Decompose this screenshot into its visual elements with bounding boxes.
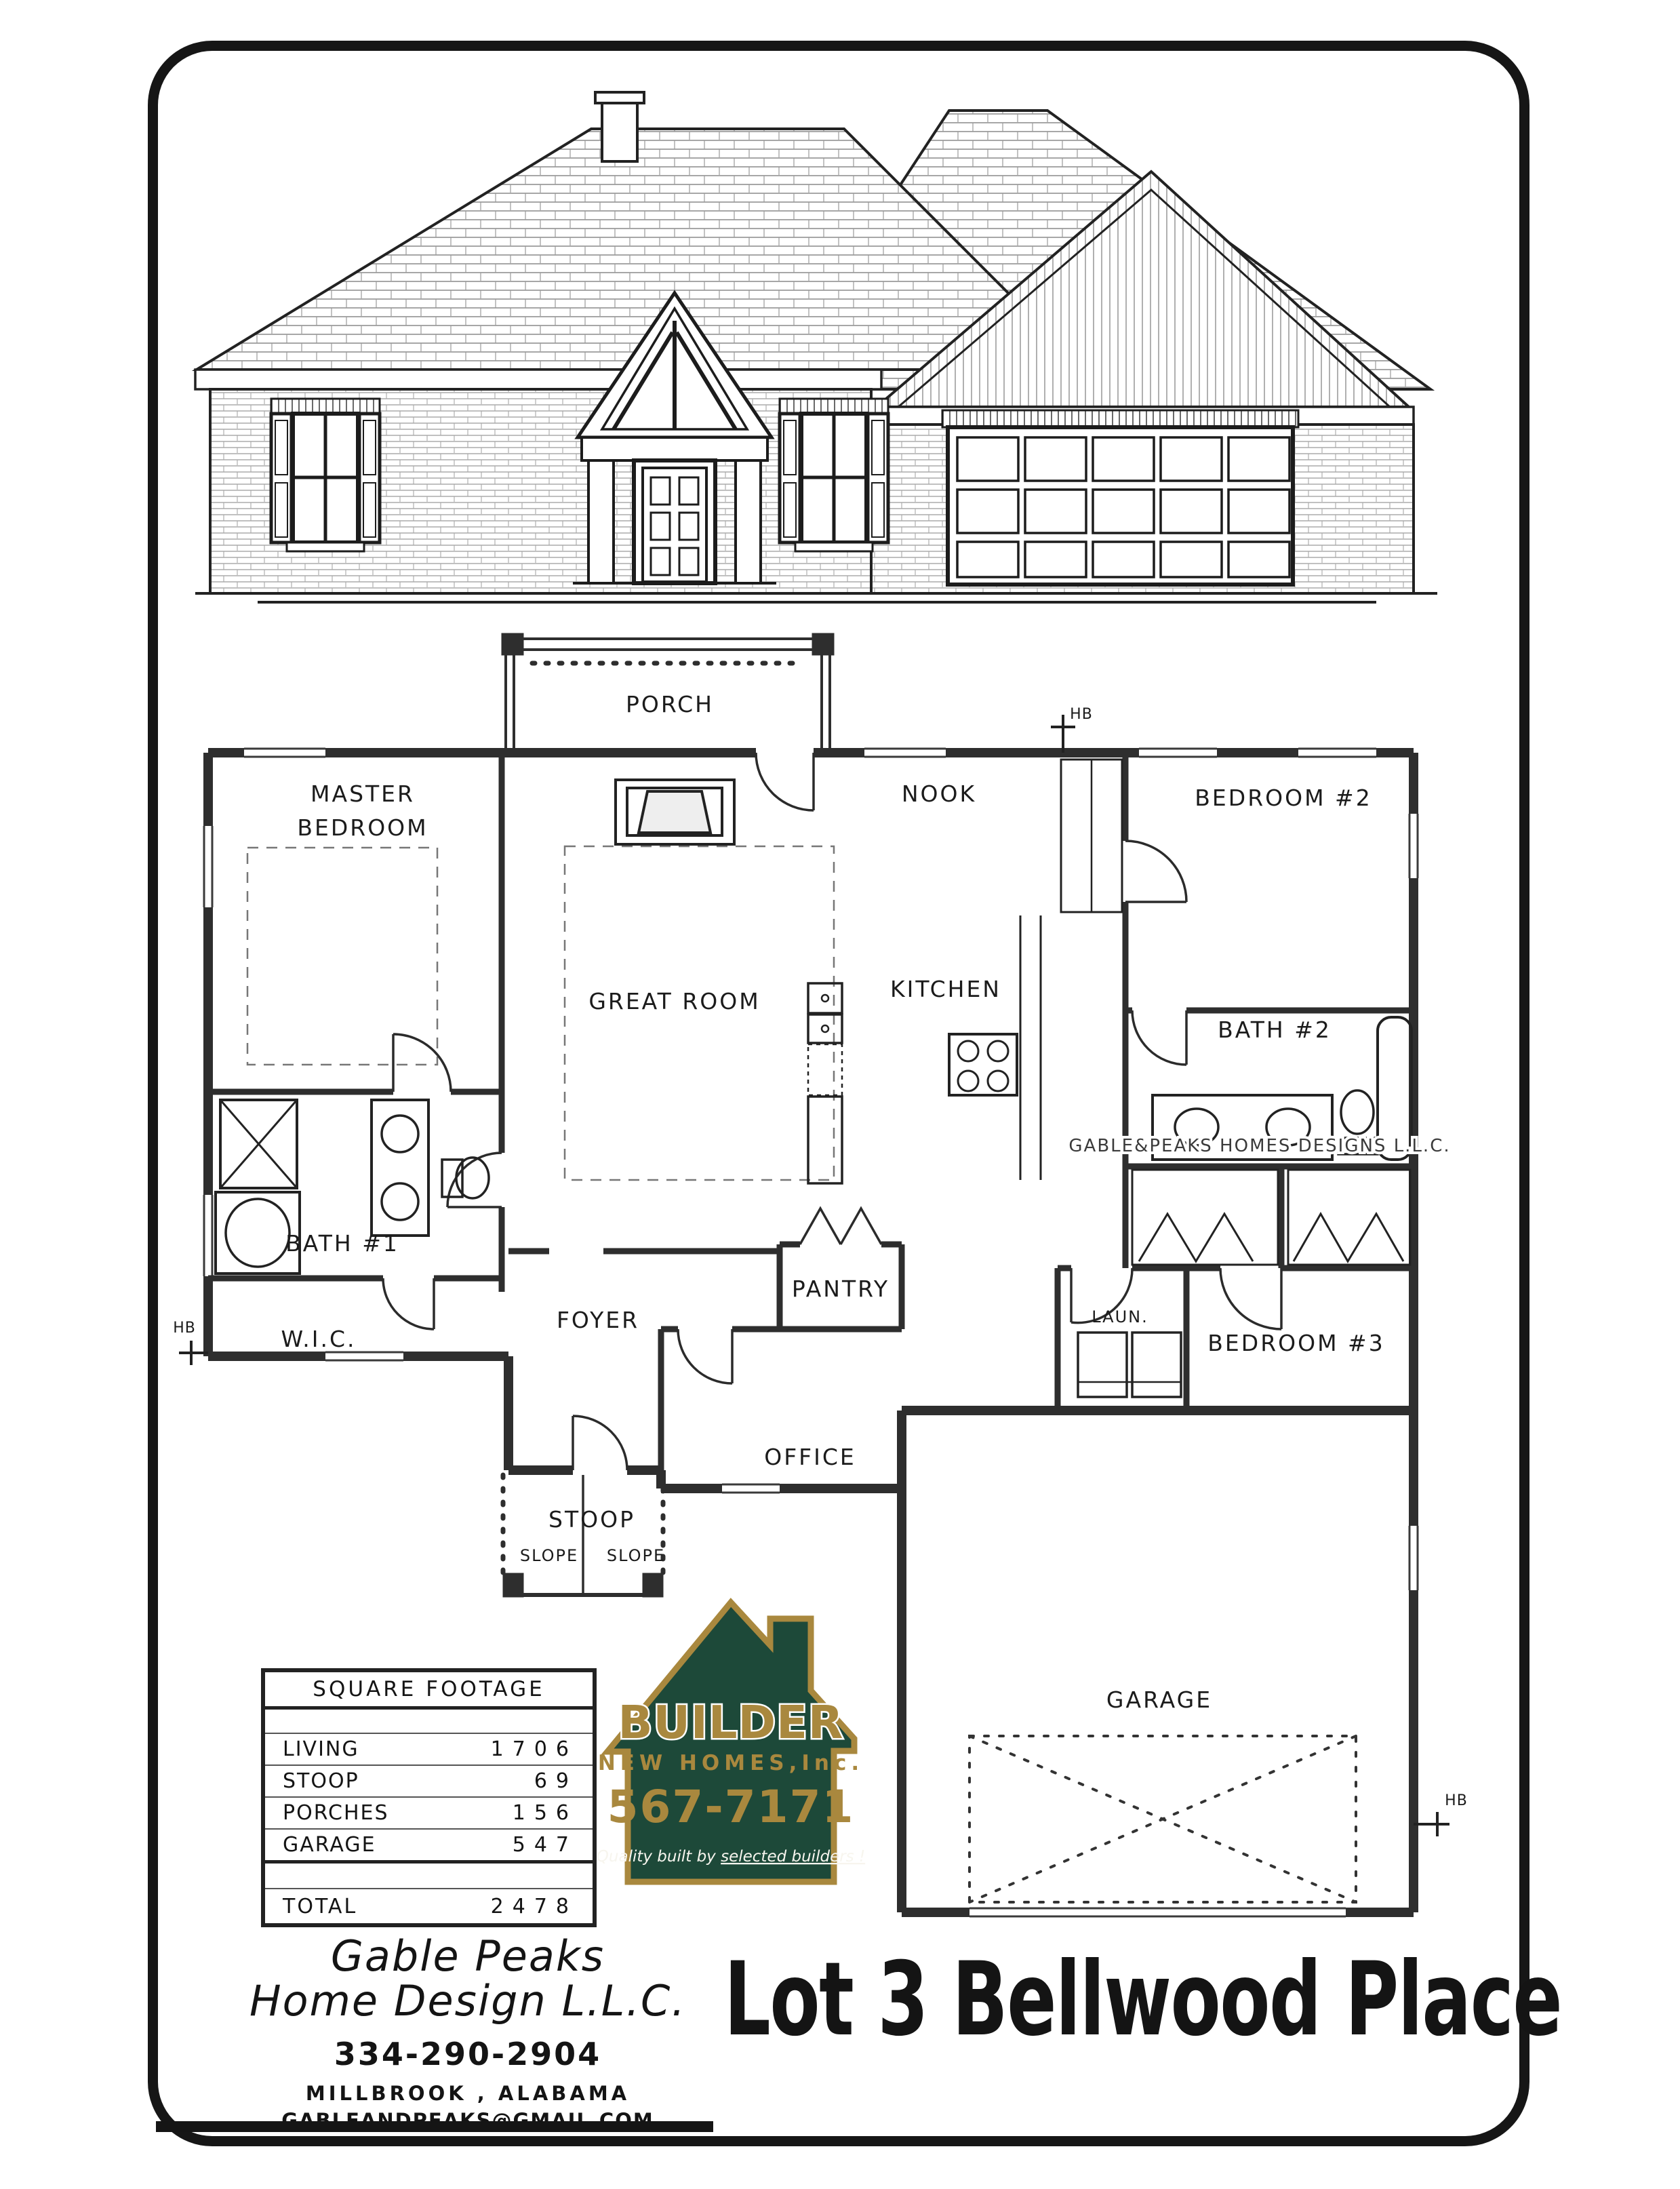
room-label-garage: GARAGE <box>1106 1687 1212 1713</box>
room-label-porch: PORCH <box>626 691 714 717</box>
row-value: 547 <box>513 1833 578 1857</box>
designer-name-line2: Home Design L.L.C. <box>224 1979 712 2024</box>
garage-attic-outline <box>969 1736 1356 1902</box>
row-value: 69 <box>534 1769 578 1793</box>
fireplace <box>616 780 734 844</box>
table-row-total: TOTAL 2478 <box>265 1889 593 1923</box>
door-swings <box>383 753 1281 1470</box>
room-label-slope-left: SLOPE <box>520 1546 578 1565</box>
chimney <box>595 92 644 161</box>
floorplan-watermark: GABLE&PEAKS HOMES DESIGNS L.L.C. <box>1068 1136 1450 1156</box>
room-label-kitchen: KITCHEN <box>890 976 1001 1002</box>
stoop-structure <box>503 1475 663 1597</box>
room-label-slope-right: SLOPE <box>607 1546 665 1565</box>
window-right <box>780 399 888 551</box>
row-value: 1706 <box>491 1737 578 1761</box>
hose-bib-label-right: HB <box>1445 1792 1468 1809</box>
designer-phone: 334-290-2904 <box>224 2036 712 2072</box>
row-label: STOOP <box>283 1769 359 1793</box>
pillar-left <box>588 460 614 583</box>
room-label-bedroom2: BEDROOM #2 <box>1195 785 1372 811</box>
front-door <box>643 468 706 582</box>
eave-fascia-left <box>195 370 881 389</box>
designer-location: MILLBROOK , ALABAMA <box>224 2082 712 2105</box>
room-label-office: OFFICE <box>764 1444 856 1470</box>
hose-bib-label-top: HB <box>1070 706 1093 723</box>
room-label-foyer: FOYER <box>557 1307 639 1333</box>
room-label-laundry: LAUN. <box>1092 1307 1148 1326</box>
ground-line <box>195 593 1437 602</box>
table-spacer <box>265 1710 593 1734</box>
bottom-rule <box>156 2121 713 2132</box>
table-title: SQUARE FOOTAGE <box>265 1672 593 1710</box>
room-label-master-2: BEDROOM <box>297 814 428 841</box>
table-row-porches: PORCHES 156 <box>265 1798 593 1830</box>
table-row-garage: GARAGE 547 <box>265 1830 593 1863</box>
table-spacer <box>265 1863 593 1889</box>
room-label-master-1: MASTER <box>311 781 415 807</box>
table-row-stoop: STOOP 69 <box>265 1766 593 1798</box>
row-label: PORCHES <box>283 1801 389 1825</box>
room-label-nook: NOOK <box>902 781 976 807</box>
lot-title: Lot 3 Bellwood Place <box>724 1941 1561 2059</box>
kitchen-fixtures <box>808 915 1041 1183</box>
room-label-wic: W.I.C. <box>281 1326 356 1352</box>
room-label-bath2: BATH #2 <box>1218 1017 1332 1043</box>
row-value: 156 <box>513 1801 578 1825</box>
row-label: GARAGE <box>283 1833 376 1857</box>
window-left <box>271 399 380 551</box>
hose-bib-label-left: HB <box>173 1320 196 1337</box>
row-label: LIVING <box>283 1737 359 1761</box>
garage-door <box>942 410 1298 585</box>
room-label-stoop: STOOP <box>548 1506 635 1533</box>
room-label-pantry: PANTRY <box>792 1276 889 1302</box>
builder-logo: BUILDER NEW HOMES,Inc. 567-7171 Quality … <box>595 1583 866 1902</box>
room-label-bath1: BATH #1 <box>285 1230 399 1257</box>
logo-tagline: Quality built by selected builders ! <box>597 1848 865 1866</box>
pillar-right <box>736 460 761 583</box>
total-label: TOTAL <box>283 1895 357 1918</box>
designer-block: Gable Peaks Home Design L.L.C. 334-290-2… <box>224 1934 712 2132</box>
square-footage-table: SQUARE FOOTAGE LIVING 1706 STOOP 69 PORC… <box>261 1668 597 1927</box>
plan-sheet: PORCH MASTER BEDROOM NOOK BEDROOM #2 GRE… <box>0 0 1680 2189</box>
logo-phone: 567-7171 <box>607 1781 855 1833</box>
table-row-living: LIVING 1706 <box>265 1734 593 1766</box>
total-value: 2478 <box>491 1895 578 1918</box>
logo-subtitle: NEW HOMES,Inc. <box>598 1751 864 1775</box>
entablature <box>582 437 767 460</box>
room-label-great-room: GREAT ROOM <box>588 988 760 1014</box>
designer-name-line1: Gable Peaks <box>224 1934 712 1979</box>
front-elevation-drawing <box>190 87 1444 609</box>
room-label-bedroom3: BEDROOM #3 <box>1207 1330 1384 1356</box>
laundry-fixtures <box>1078 1333 1181 1397</box>
logo-name: BUILDER <box>618 1696 843 1749</box>
